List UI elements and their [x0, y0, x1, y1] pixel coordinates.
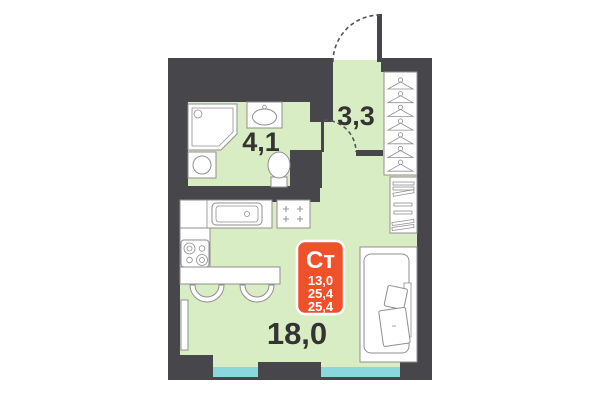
bar-counter-icon — [180, 267, 280, 284]
door-leaf — [377, 14, 382, 62]
unit-badge[interactable]: Ст 13,0 25,4 25,4 — [297, 241, 344, 314]
hob-icon — [277, 200, 310, 228]
window-sill — [213, 377, 258, 380]
hallway-area-label: 3,3 — [337, 101, 375, 131]
window-pier-wall — [258, 362, 321, 380]
floor-plan: 3,3 4,1 18,0 Ст 13,0 25,4 25,4 — [0, 0, 600, 400]
unit-area-reduced: 25,4 — [308, 299, 334, 314]
wall-segment — [168, 186, 180, 380]
wall-segment — [310, 102, 333, 122]
radiator-icon — [181, 300, 188, 350]
bathroom-area-label: 4,1 — [242, 127, 280, 157]
unit-type-label: Ст — [306, 247, 335, 274]
window-glazing — [213, 367, 258, 377]
wall-segment — [290, 150, 322, 188]
pillow — [379, 307, 411, 346]
shelf-slats — [392, 182, 414, 231]
entrance-door — [333, 14, 382, 62]
window-glazing — [321, 367, 400, 377]
door-leaf — [321, 122, 324, 152]
wall-segment — [168, 58, 333, 102]
floor-plan-canvas: 3,3 4,1 18,0 Ст 13,0 25,4 25,4 — [0, 0, 600, 400]
main-room-area-label: 18,0 — [267, 316, 327, 351]
door-swing-icon — [333, 15, 380, 62]
window-sill — [321, 377, 400, 380]
sink-icon — [247, 102, 282, 128]
wall-segment — [168, 355, 213, 380]
pillow — [384, 285, 408, 310]
wall-segment — [168, 58, 188, 190]
stove-icon — [181, 240, 209, 267]
wall-segment — [356, 150, 383, 156]
shower-drain — [194, 110, 202, 118]
wall-segment — [417, 60, 432, 380]
bed-icon — [360, 247, 417, 362]
